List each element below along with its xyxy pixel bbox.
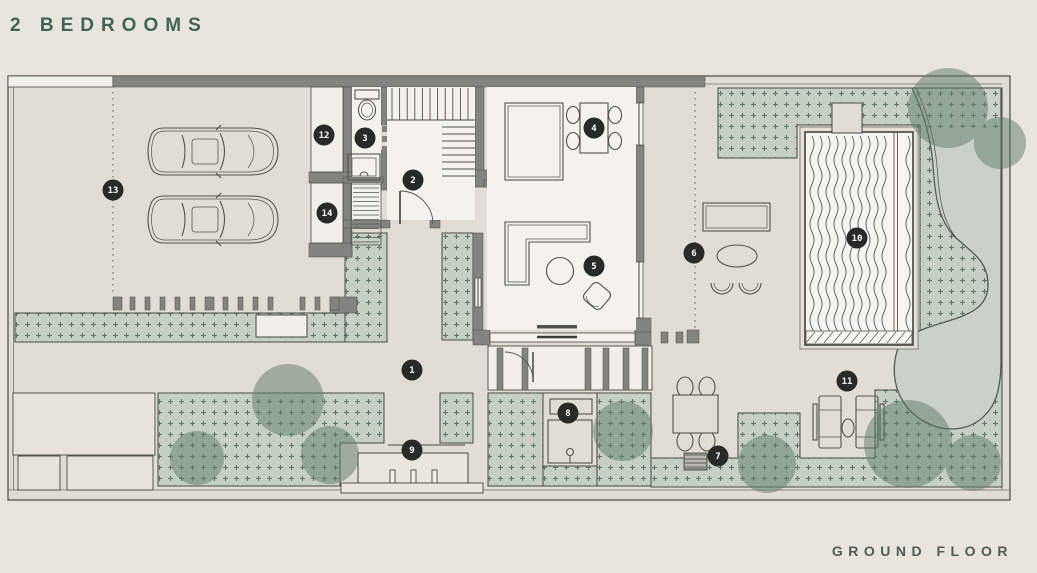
marker-8[interactable]: 8	[558, 403, 579, 424]
svg-text:14: 14	[322, 209, 333, 219]
tree-icon	[864, 400, 952, 488]
svg-text:8: 8	[565, 409, 570, 419]
marker-6[interactable]: 6	[684, 243, 705, 264]
bollard	[432, 470, 437, 483]
tree-icon	[170, 431, 224, 485]
marker-12[interactable]: 12	[314, 125, 335, 146]
pool-group	[800, 103, 918, 349]
svg-text:2: 2	[410, 176, 415, 186]
bollard	[390, 470, 395, 483]
stepping-stones	[661, 330, 699, 343]
bbq-grill	[684, 453, 707, 470]
marker-9[interactable]: 9	[402, 440, 423, 461]
tv-console	[537, 325, 577, 329]
outdoor-table	[673, 395, 718, 433]
svg-text:6: 6	[691, 249, 696, 259]
marker-5[interactable]: 5	[584, 256, 605, 277]
fence-posts	[113, 297, 339, 310]
driveway-pads	[13, 393, 155, 490]
marker-2[interactable]: 2	[403, 170, 424, 191]
sliding-door	[490, 333, 635, 342]
svg-text:9: 9	[409, 446, 414, 456]
tree-icon	[301, 426, 359, 484]
floorplan-page: 2 BEDROOMS GROUND FLOOR	[0, 0, 1037, 573]
tree-icon	[738, 435, 796, 493]
tree-icon	[974, 117, 1026, 169]
marker-3[interactable]: 3	[355, 128, 376, 149]
pool-steps	[832, 103, 862, 133]
svg-text:12: 12	[319, 131, 330, 141]
tree-icon	[593, 401, 653, 461]
marker-11[interactable]: 11	[837, 371, 858, 392]
svg-text:1: 1	[409, 366, 414, 376]
svg-text:10: 10	[852, 234, 863, 244]
pool-grate	[806, 331, 914, 344]
marker-13[interactable]: 13	[103, 180, 124, 201]
svg-text:4: 4	[591, 124, 597, 134]
tree-icon	[945, 435, 1001, 491]
floorplan-drawing: 1234567891011121314	[0, 0, 1037, 573]
planter-box	[256, 315, 307, 337]
marker-14[interactable]: 14	[317, 203, 338, 224]
svg-text:13: 13	[108, 186, 119, 196]
svg-text:3: 3	[362, 134, 367, 144]
bollard	[411, 470, 416, 483]
svg-text:5: 5	[591, 262, 596, 272]
tree-icon	[252, 364, 324, 436]
svg-text:7: 7	[715, 452, 720, 462]
rear-deck	[488, 346, 652, 390]
marker-4[interactable]: 4	[584, 118, 605, 139]
svg-text:11: 11	[842, 377, 853, 387]
marker-7[interactable]: 7	[708, 446, 729, 467]
marker-10[interactable]: 10	[847, 228, 868, 249]
marker-1[interactable]: 1	[402, 360, 423, 381]
